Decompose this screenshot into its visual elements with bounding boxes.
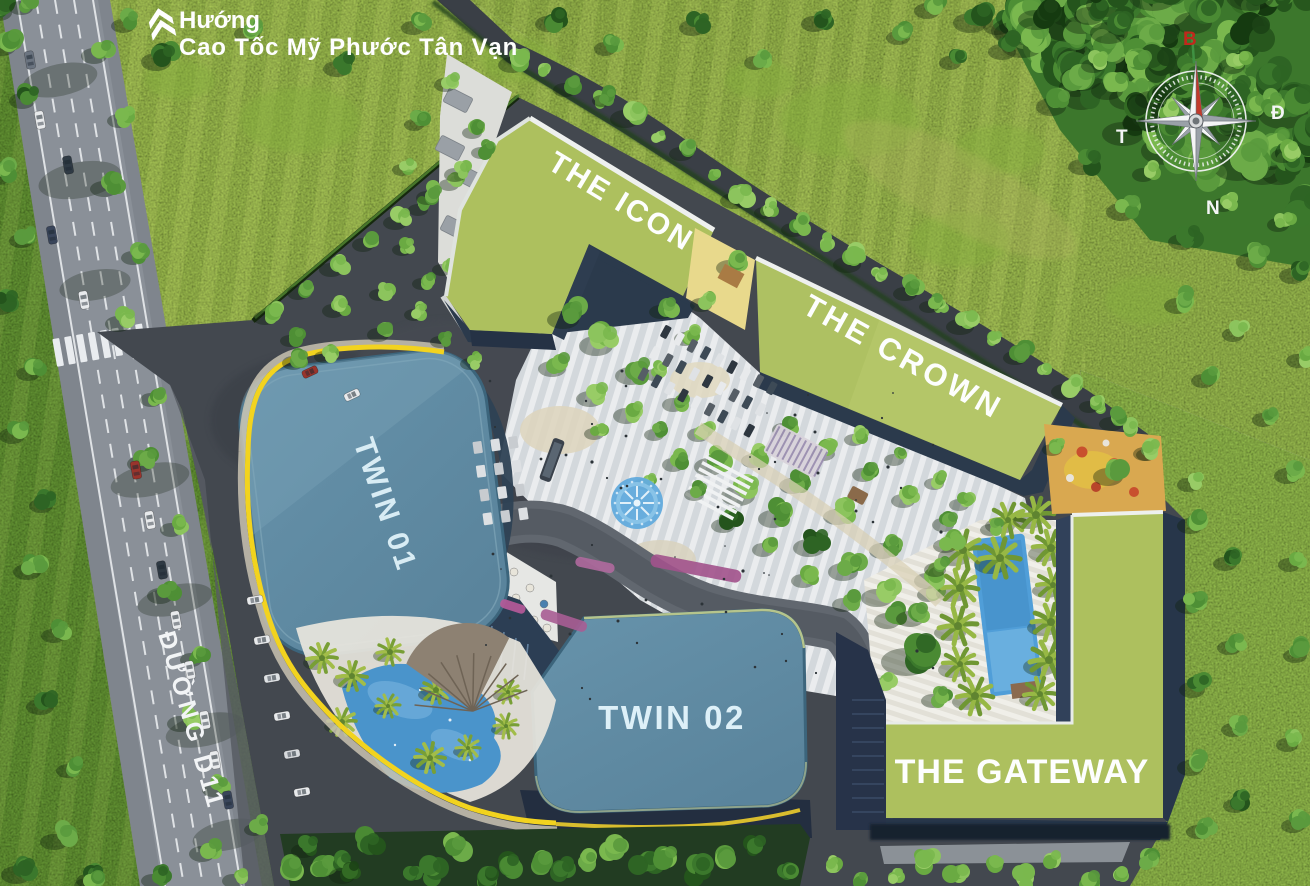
svg-text:Hướng: Hướng [179,7,260,34]
svg-text:N: N [1206,198,1220,219]
svg-text:Cao Tốc Mỹ Phước Tân Vạn: Cao Tốc Mỹ Phước Tân Vạn [179,34,518,61]
svg-text:T: T [1116,127,1128,148]
svg-text:B: B [1183,29,1197,50]
svg-text:THE GATEWAY: THE GATEWAY [895,753,1150,791]
svg-text:TWIN 02: TWIN 02 [598,699,746,736]
svg-text:Đ: Đ [1271,103,1285,124]
